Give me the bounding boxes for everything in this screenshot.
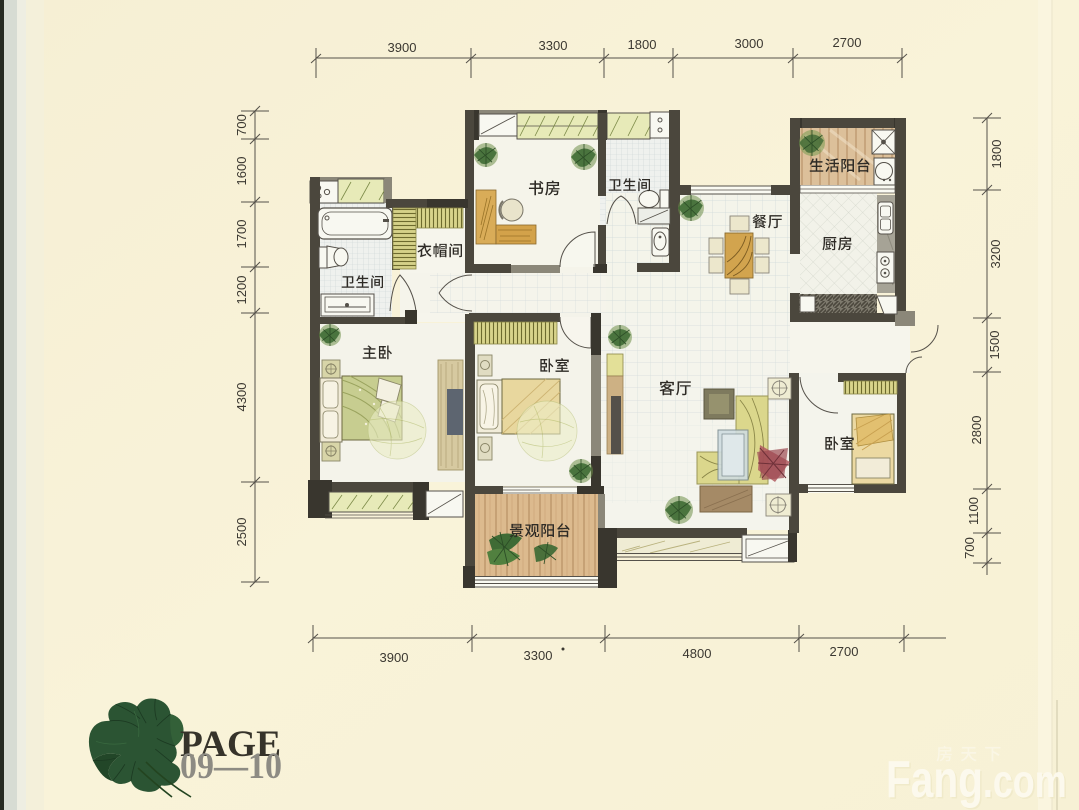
svg-text:700: 700 (962, 537, 977, 559)
svg-text:Fang.com: Fang.com (886, 750, 1067, 808)
svg-text:3300: 3300 (524, 648, 553, 663)
svg-text:1100: 1100 (966, 497, 981, 525)
svg-text:3000: 3000 (735, 36, 764, 51)
svg-text:1800: 1800 (628, 37, 657, 52)
svg-text:1700: 1700 (234, 220, 249, 249)
svg-text:3900: 3900 (380, 650, 409, 665)
svg-text:4300: 4300 (234, 383, 249, 412)
svg-text:2700: 2700 (833, 35, 862, 50)
svg-text:1200: 1200 (234, 276, 249, 305)
svg-text:2500: 2500 (234, 518, 249, 547)
svg-text:700: 700 (234, 114, 249, 136)
svg-text:3300: 3300 (539, 38, 568, 53)
svg-text:4800: 4800 (683, 646, 712, 661)
svg-text:2700: 2700 (830, 644, 859, 659)
svg-text:09—10: 09—10 (180, 746, 282, 787)
svg-text:2800: 2800 (969, 416, 984, 445)
svg-text:1600: 1600 (234, 157, 249, 186)
svg-text:1800: 1800 (989, 140, 1004, 169)
svg-text:1500: 1500 (987, 331, 1002, 360)
svg-text:3200: 3200 (988, 240, 1003, 269)
svg-text:3900: 3900 (388, 40, 417, 55)
